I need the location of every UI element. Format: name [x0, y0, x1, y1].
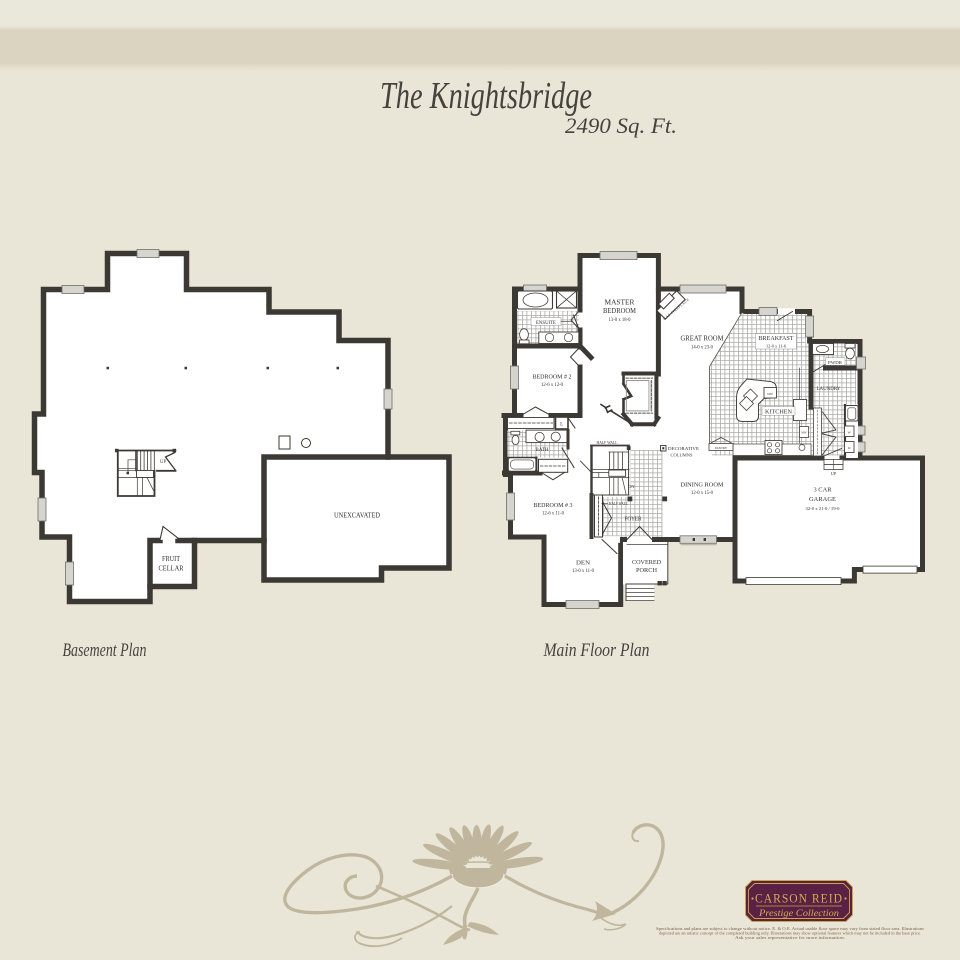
svg-text:32-0 x 21-0 / 19-0: 32-0 x 21-0 / 19-0: [806, 506, 841, 511]
svg-text:UP: UP: [160, 460, 166, 465]
svg-text:13-0 x 18-0: 13-0 x 18-0: [609, 318, 632, 323]
svg-text:12-0 x 11-6: 12-0 x 11-6: [766, 344, 787, 349]
svg-text:13-0 x 11-0: 13-0 x 11-0: [572, 569, 595, 574]
svg-text:The Knightsbridge: The Knightsbridge: [380, 75, 592, 117]
svg-text:HALF WALL: HALF WALL: [597, 441, 619, 445]
svg-text:2490 Sq. Ft.: 2490 Sq. Ft.: [565, 113, 677, 138]
svg-text:DW: DW: [767, 392, 773, 396]
svg-text:DECORATIVE: DECORATIVE: [668, 446, 699, 451]
svg-text:PANTRY: PANTRY: [715, 446, 728, 450]
svg-text:depicted are an artistic conce: depicted are an artistic concept of the …: [659, 932, 921, 936]
svg-text:PWDR: PWDR: [828, 360, 843, 365]
svg-text:UP: UP: [831, 471, 837, 476]
svg-text:HALF WALL: HALF WALL: [609, 502, 629, 506]
svg-text:Ask your sales representative: Ask your sales representative for more i…: [735, 936, 845, 940]
svg-text:DEN: DEN: [576, 560, 590, 567]
svg-text:CARSON REID: CARSON REID: [755, 892, 843, 906]
svg-text:DN: DN: [628, 484, 635, 489]
svg-text:COVERED: COVERED: [632, 559, 662, 566]
svg-text:12-6 x 11-0: 12-6 x 11-0: [542, 512, 565, 517]
svg-text:DINING ROOM: DINING ROOM: [681, 482, 724, 489]
svg-text:CELLAR: CELLAR: [159, 564, 184, 573]
svg-text:ENSUITE: ENSUITE: [536, 320, 556, 326]
svg-text:BREAKFAST: BREAKFAST: [759, 335, 794, 342]
svg-text:L: L: [560, 423, 563, 428]
svg-text:PORCH: PORCH: [636, 567, 658, 574]
svg-text:3 CAR: 3 CAR: [814, 487, 833, 494]
svg-text:FRUIT: FRUIT: [162, 554, 180, 563]
svg-text:MASTER: MASTER: [605, 299, 635, 307]
svg-text:COLUMNS: COLUMNS: [671, 452, 694, 457]
svg-text:BATH: BATH: [536, 447, 549, 453]
svg-text:Specifications and plans are s: Specifications and plans are subject to …: [656, 927, 925, 931]
svg-text:GREAT ROOM: GREAT ROOM: [681, 335, 725, 343]
svg-text:FOYER: FOYER: [625, 517, 642, 523]
svg-text:KITCHEN: KITCHEN: [765, 409, 792, 416]
svg-text:Basement Plan: Basement Plan: [63, 640, 147, 661]
svg-text:MW: MW: [801, 431, 807, 435]
svg-text:12-0 x 15-0: 12-0 x 15-0: [691, 491, 714, 496]
svg-text:Prestige Collection: Prestige Collection: [758, 908, 840, 918]
svg-text:BEDROOM # 3: BEDROOM # 3: [534, 502, 574, 509]
svg-text:UNEXCAVATED: UNEXCAVATED: [334, 511, 380, 520]
svg-text:12-6 x 12-0: 12-6 x 12-0: [541, 383, 564, 388]
svg-text:GARAGE: GARAGE: [809, 496, 836, 503]
svg-text:14-0 x 23-0: 14-0 x 23-0: [691, 346, 714, 351]
svg-text:BEDROOM # 2: BEDROOM # 2: [533, 374, 572, 381]
svg-text:Main Floor Plan: Main Floor Plan: [543, 640, 650, 661]
svg-text:BEDROOM: BEDROOM: [603, 307, 637, 315]
svg-text:LAUNDRY: LAUNDRY: [817, 386, 841, 392]
